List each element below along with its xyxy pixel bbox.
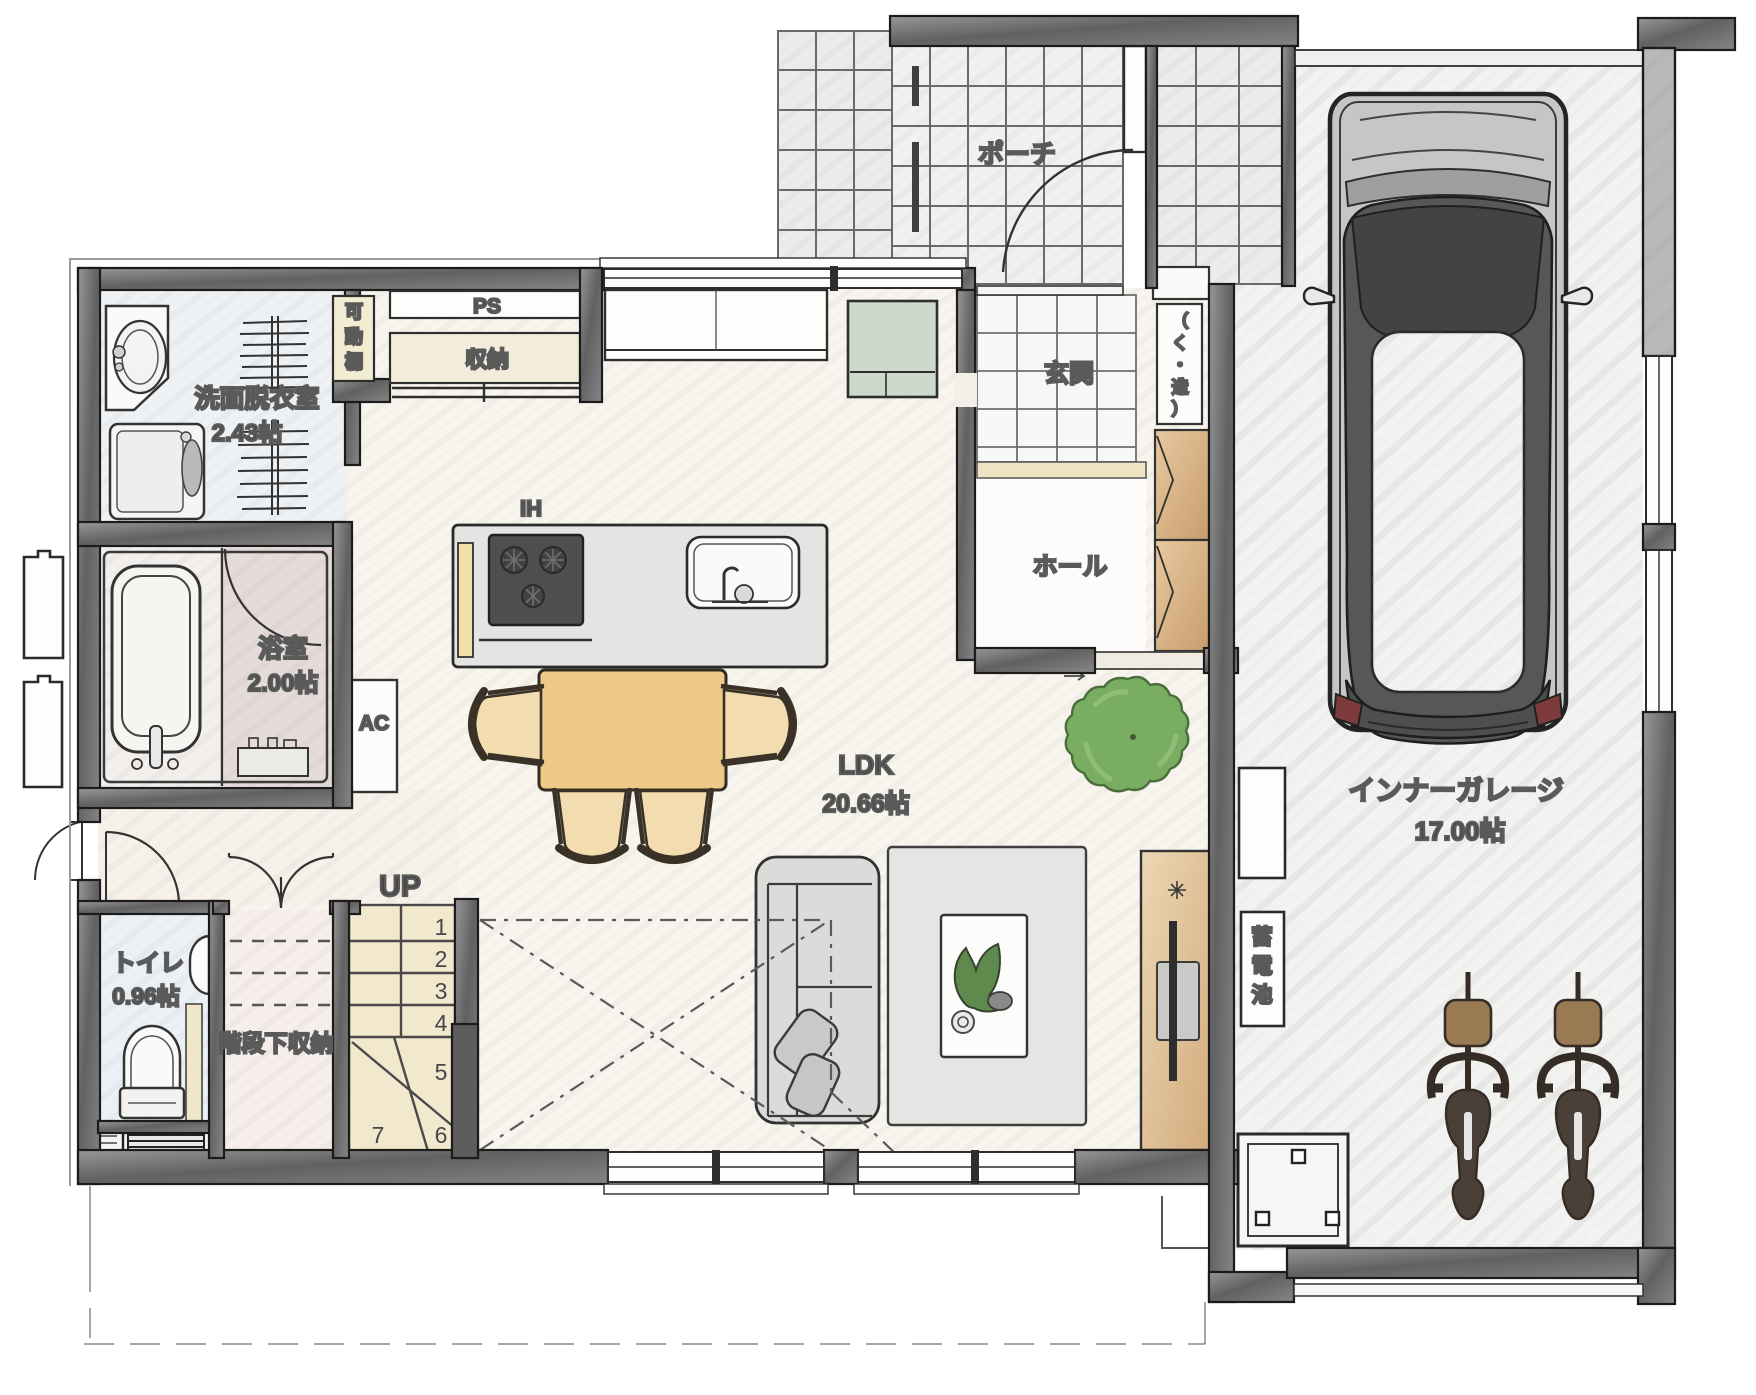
svg-text:）: ） (1172, 399, 1189, 419)
svg-text:電: 電 (1252, 955, 1273, 978)
svg-text:造: 造 (1172, 378, 1190, 397)
svg-text:階段下収納: 階段下収納 (219, 1030, 334, 1056)
svg-text:ポーチ: ポーチ (978, 139, 1056, 169)
svg-text:インナーガレージ: インナーガレージ (1348, 776, 1563, 806)
svg-text:7: 7 (372, 1122, 385, 1148)
svg-text:1: 1 (435, 914, 448, 940)
svg-text:く: く (1172, 334, 1189, 353)
svg-text:蓄: 蓄 (1252, 926, 1273, 949)
svg-text:・: ・ (1172, 356, 1189, 375)
svg-text:5: 5 (435, 1059, 448, 1085)
svg-text:LDK: LDK (838, 750, 894, 780)
svg-text:トイレ: トイレ (112, 950, 184, 977)
svg-text:棚: 棚 (345, 351, 363, 372)
svg-text:20.66帖: 20.66帖 (822, 790, 910, 818)
svg-text:玄関: 玄関 (1044, 359, 1094, 388)
svg-text:ホール: ホール (1032, 553, 1107, 581)
svg-text:2: 2 (435, 946, 448, 972)
svg-text:6: 6 (435, 1122, 448, 1148)
svg-text:2.43帖: 2.43帖 (212, 420, 283, 447)
svg-text:洗面脱衣室: 洗面脱衣室 (194, 384, 319, 413)
svg-text:AC: AC (359, 712, 389, 735)
svg-text:UP: UP (379, 870, 421, 903)
svg-text:池: 池 (1252, 984, 1273, 1007)
svg-text:4: 4 (435, 1010, 448, 1036)
svg-text:動: 動 (345, 326, 363, 347)
svg-text:PS: PS (473, 295, 501, 318)
svg-text:浴室: 浴室 (258, 634, 308, 663)
svg-text:可: 可 (345, 302, 363, 322)
svg-text:3: 3 (435, 978, 448, 1004)
svg-text:0.96帖: 0.96帖 (112, 983, 180, 1009)
svg-text:2.00帖: 2.00帖 (248, 670, 319, 697)
svg-text:IH: IH (520, 496, 542, 521)
svg-text:17.00帖: 17.00帖 (1414, 816, 1505, 846)
svg-text:収納: 収納 (465, 347, 509, 372)
svg-text:（: （ (1172, 311, 1189, 331)
